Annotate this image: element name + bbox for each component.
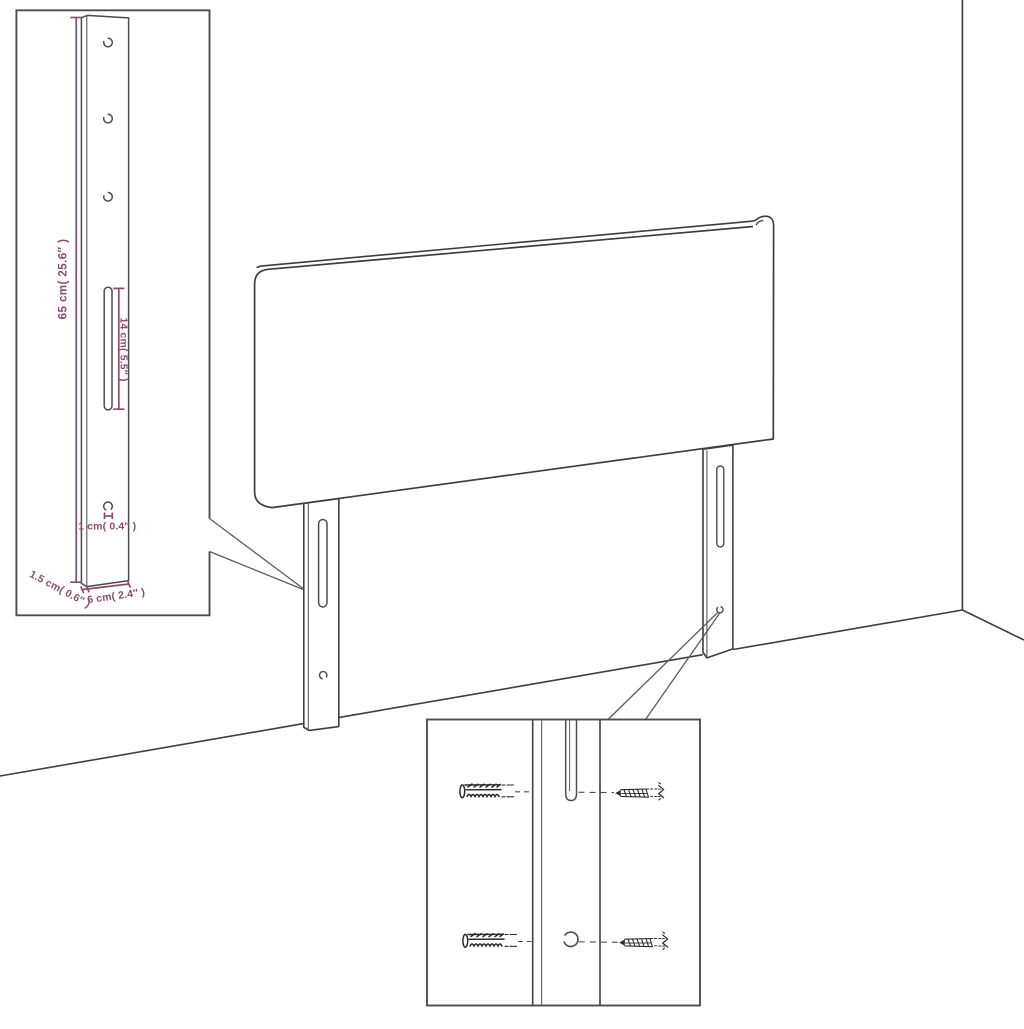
svg-text:1 cm( 0.4″ ): 1 cm( 0.4″ ) bbox=[78, 520, 136, 532]
svg-text:14 cm( 5.5″ ): 14 cm( 5.5″ ) bbox=[117, 318, 128, 382]
svg-text:65 cm( 25.6″ ): 65 cm( 25.6″ ) bbox=[57, 239, 70, 320]
